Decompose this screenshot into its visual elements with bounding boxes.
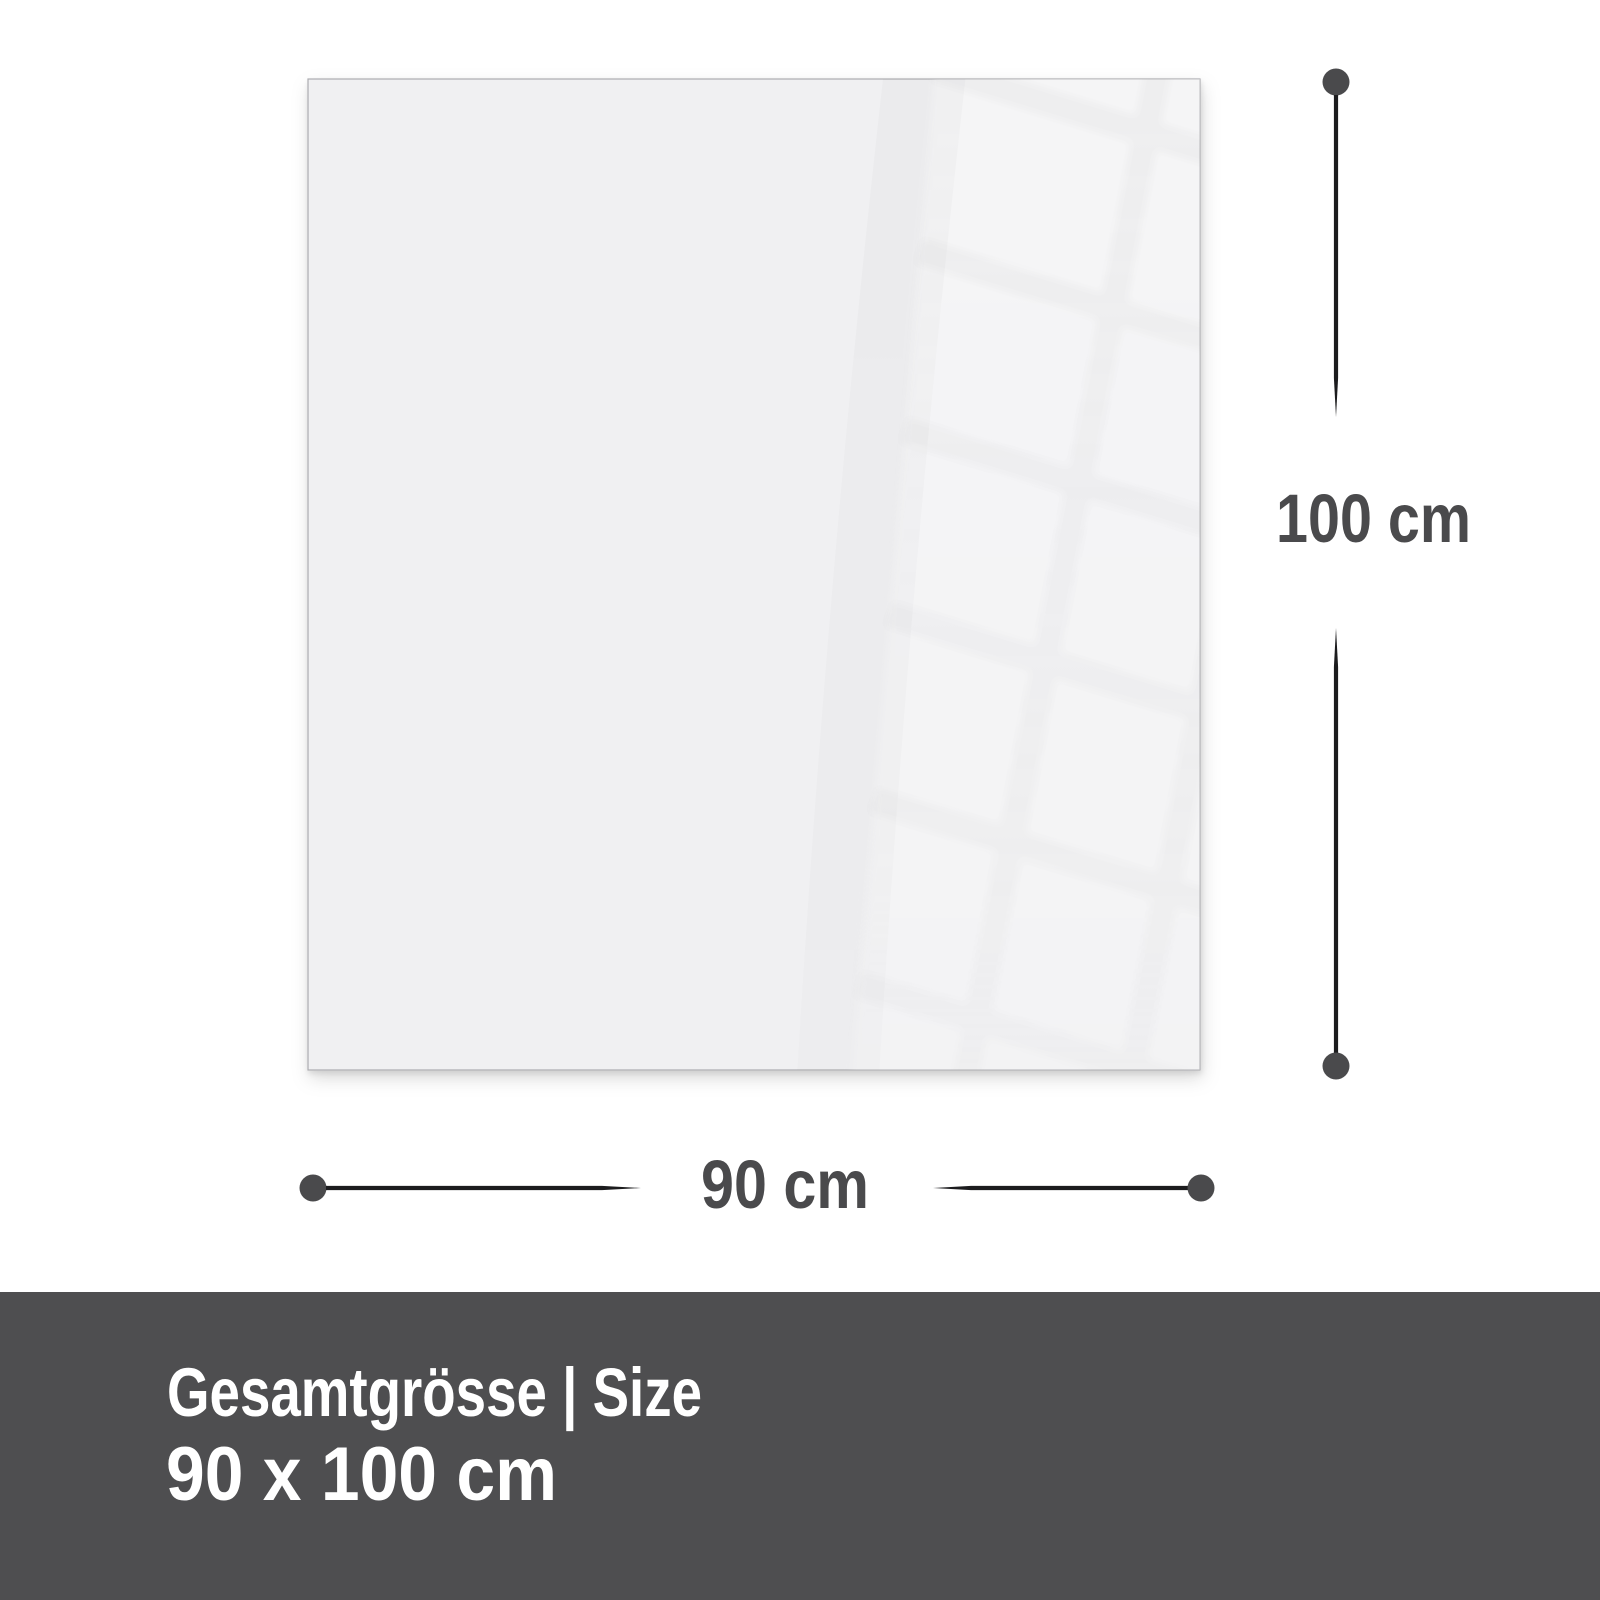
svg-text:Gesamtgrösse | Size: Gesamtgrösse | Size — [167, 1354, 702, 1432]
svg-text:90 cm: 90 cm — [701, 1146, 869, 1223]
svg-text:100 cm: 100 cm — [1276, 480, 1471, 557]
svg-text:90 x 100 cm: 90 x 100 cm — [166, 1432, 557, 1517]
